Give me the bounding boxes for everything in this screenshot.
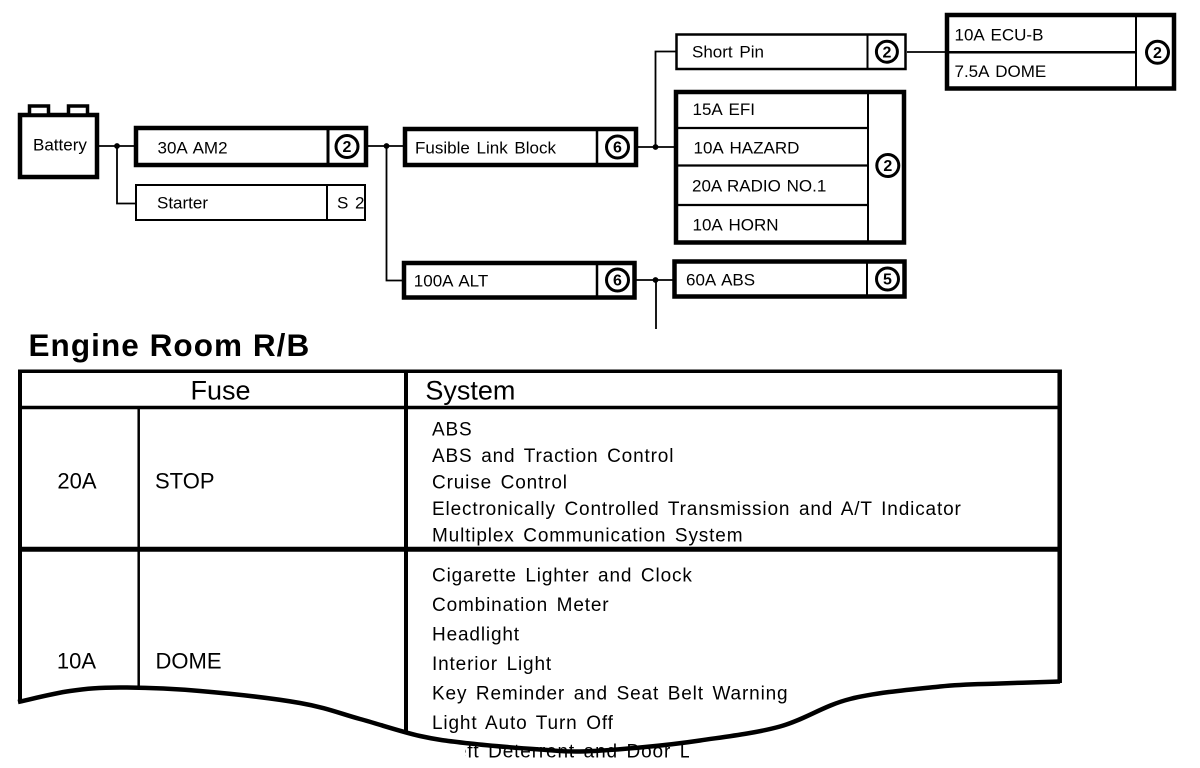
svg-text:Fusible Link Block: Fusible Link Block <box>415 139 557 158</box>
svg-text:6: 6 <box>613 273 622 290</box>
svg-text:Key Reminder and Seat Belt War: Key Reminder and Seat Belt Warning <box>432 684 788 705</box>
svg-text:20A RADIO NO.1: 20A RADIO NO.1 <box>692 177 826 196</box>
svg-text:Headlight: Headlight <box>432 625 520 646</box>
svg-text:Engine Room R/B: Engine Room R/B <box>29 327 311 363</box>
svg-text:6: 6 <box>613 140 622 157</box>
svg-text:2: 2 <box>343 139 352 156</box>
svg-text:Fuse: Fuse <box>190 376 250 406</box>
svg-text:15A EFI: 15A EFI <box>693 100 755 119</box>
svg-text:Cruise Control: Cruise Control <box>432 472 568 493</box>
svg-text:Starter: Starter <box>157 194 208 213</box>
svg-text:10A: 10A <box>57 649 96 674</box>
svg-text:Interior Light: Interior Light <box>432 654 552 675</box>
svg-text:2: 2 <box>882 44 891 61</box>
svg-text:2: 2 <box>883 158 892 175</box>
svg-text:Short Pin: Short Pin <box>692 43 764 62</box>
svg-text:Electronically Controlled Tran: Electronically Controlled Transmission a… <box>432 499 962 520</box>
svg-text:DOME: DOME <box>156 649 222 674</box>
svg-text:Theft Deterrent and Door Lock: Theft Deterrent and Door Lock <box>432 742 723 763</box>
svg-text:100A ALT: 100A ALT <box>414 272 488 291</box>
svg-text:10A ECU-B: 10A ECU-B <box>955 26 1044 45</box>
svg-text:10A HAZARD: 10A HAZARD <box>694 139 800 158</box>
svg-text:ABS: ABS <box>432 419 473 440</box>
svg-text:STOP: STOP <box>155 469 215 494</box>
svg-text:ABS and Traction Control: ABS and Traction Control <box>432 446 674 467</box>
svg-text:60A ABS: 60A ABS <box>686 270 755 289</box>
svg-text:System: System <box>425 376 515 406</box>
svg-text:30A AM2: 30A AM2 <box>158 139 228 158</box>
svg-text:Light Auto Turn Off: Light Auto Turn Off <box>432 713 614 734</box>
svg-text:Multiplex Communication System: Multiplex Communication System <box>432 525 743 546</box>
svg-text:Combination Meter: Combination Meter <box>432 595 609 616</box>
svg-text:Battery: Battery <box>33 136 87 155</box>
svg-text:S 2: S 2 <box>337 194 365 213</box>
svg-text:5: 5 <box>883 272 892 289</box>
svg-text:10A HORN: 10A HORN <box>693 216 779 235</box>
svg-text:7.5A DOME: 7.5A DOME <box>955 62 1047 81</box>
svg-text:2: 2 <box>1153 45 1162 62</box>
svg-text:Cigarette Lighter and Clock: Cigarette Lighter and Clock <box>432 566 693 587</box>
svg-text:20A: 20A <box>57 469 96 494</box>
